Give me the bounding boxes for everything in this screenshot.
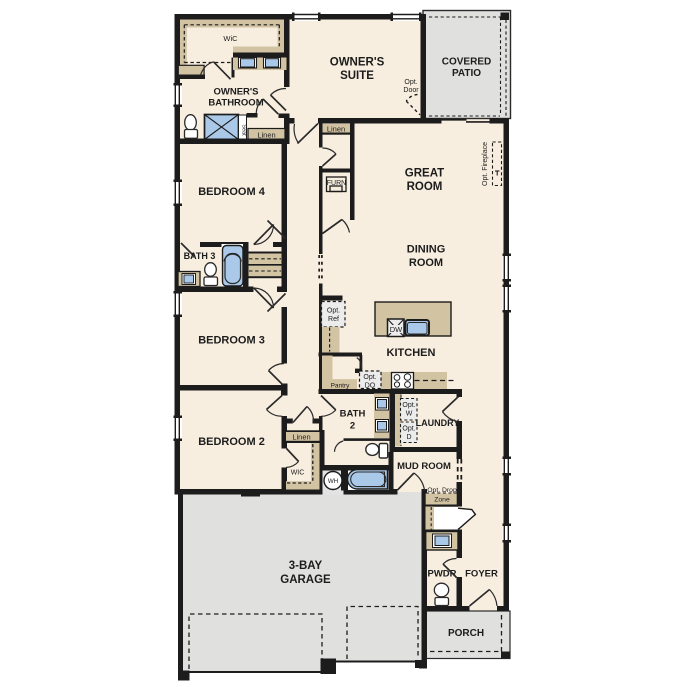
svg-text:Opt.: Opt. [404, 79, 417, 86]
svg-text:Seat: Seat [241, 124, 247, 136]
svg-text:OWNER'S: OWNER'S [213, 87, 258, 98]
svg-text:DINING: DINING [407, 244, 446, 256]
svg-text:BEDROOM 4: BEDROOM 4 [198, 186, 266, 198]
svg-text:BATH: BATH [340, 409, 366, 420]
svg-text:3-BAY: 3-BAY [289, 560, 323, 572]
svg-text:DW: DW [390, 325, 403, 334]
svg-text:GREAT: GREAT [405, 168, 444, 180]
svg-text:COVERED: COVERED [442, 57, 491, 68]
svg-text:Opt.: Opt. [327, 308, 340, 315]
svg-text:FURN: FURN [327, 180, 346, 187]
svg-text:SUITE: SUITE [340, 70, 374, 82]
svg-text:DO: DO [365, 383, 376, 390]
svg-text:FOYER: FOYER [465, 569, 498, 580]
svg-text:GARAGE: GARAGE [280, 574, 331, 586]
svg-text:Opt.: Opt. [363, 374, 376, 381]
svg-text:Zone: Zone [434, 497, 450, 504]
svg-text:BEDROOM 2: BEDROOM 2 [198, 436, 265, 448]
svg-text:MUD ROOM: MUD ROOM [397, 461, 451, 472]
svg-text:KITCHEN: KITCHEN [387, 347, 436, 359]
svg-text:2: 2 [350, 421, 355, 432]
svg-text:Linen: Linen [257, 131, 275, 140]
svg-text:Linen: Linen [292, 433, 310, 442]
svg-text:Opt. Drop: Opt. Drop [427, 487, 457, 494]
svg-text:BATHROOM: BATHROOM [208, 98, 263, 109]
svg-text:D: D [406, 434, 411, 441]
svg-text:Opt. Fireplace: Opt. Fireplace [482, 142, 489, 186]
svg-text:Ref: Ref [328, 316, 339, 323]
svg-text:PORCH: PORCH [448, 628, 484, 639]
svg-text:ROOM: ROOM [409, 257, 443, 269]
svg-text:OWNER'S: OWNER'S [330, 57, 385, 69]
svg-text:Opt.: Opt. [402, 426, 415, 433]
svg-text:W: W [406, 411, 413, 418]
svg-text:Opt.: Opt. [402, 402, 415, 409]
svg-text:WiC: WiC [223, 34, 238, 43]
svg-text:WIC: WIC [291, 470, 305, 477]
svg-text:ROOM: ROOM [407, 181, 443, 193]
svg-text:BEDROOM 3: BEDROOM 3 [198, 335, 265, 347]
svg-text:WH: WH [328, 478, 338, 485]
svg-text:Door: Door [403, 87, 419, 94]
svg-text:BATH 3: BATH 3 [184, 251, 216, 261]
svg-text:PATIO: PATIO [452, 68, 481, 79]
svg-text:Linen: Linen [327, 125, 345, 134]
svg-text:Pantry: Pantry [331, 383, 351, 390]
